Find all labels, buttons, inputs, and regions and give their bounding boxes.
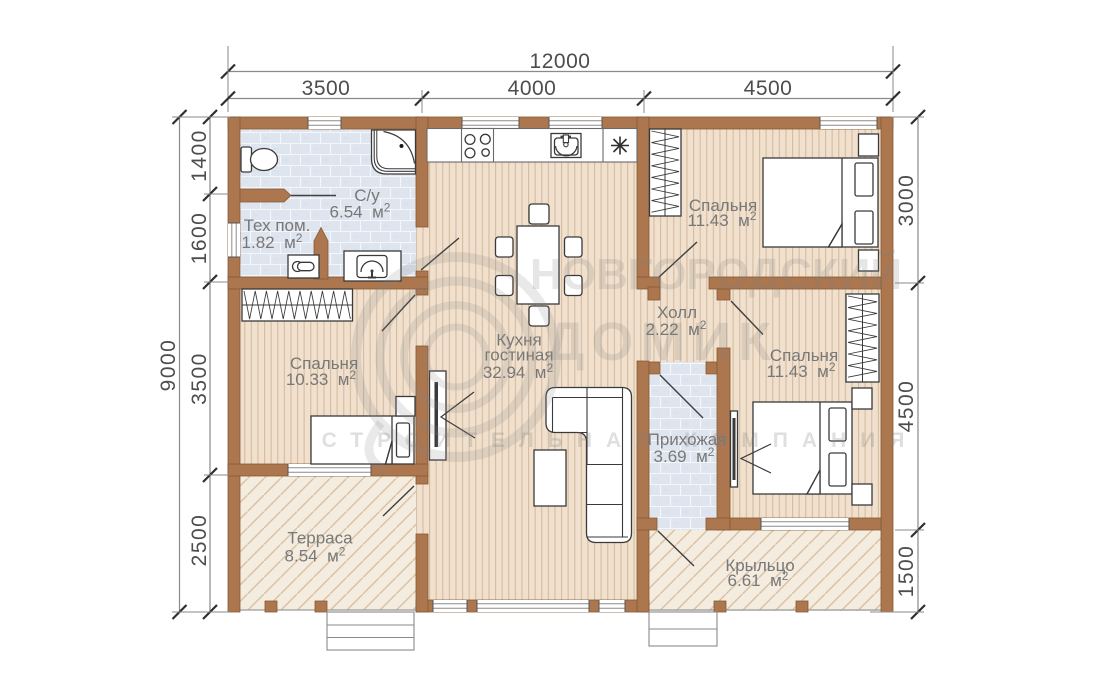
svg-text:гостиная: гостиная xyxy=(484,346,553,365)
svg-text:2500: 2500 xyxy=(188,514,211,567)
svg-text:3000: 3000 xyxy=(895,174,918,227)
svg-text:1500: 1500 xyxy=(895,545,918,598)
svg-text:12000: 12000 xyxy=(530,50,591,73)
svg-text:6.61 м2: 6.61 м2 xyxy=(728,569,789,590)
svg-text:4500: 4500 xyxy=(744,77,793,100)
svg-text:1.82 м2: 1.82 м2 xyxy=(242,231,303,252)
svg-text:1600: 1600 xyxy=(188,212,211,265)
svg-text:1400: 1400 xyxy=(188,129,211,182)
svg-text:8.54 м2: 8.54 м2 xyxy=(285,545,346,566)
svg-text:ДОМИК: ДОМИК xyxy=(546,312,778,372)
svg-text:3500: 3500 xyxy=(188,352,211,405)
svg-text:4500: 4500 xyxy=(895,380,918,433)
svg-text:6.54 м2: 6.54 м2 xyxy=(330,201,391,222)
svg-text:НОВГОРОДСКИЙ: НОВГОРОДСКИЙ xyxy=(530,248,902,299)
svg-text:32.94 м2: 32.94 м2 xyxy=(483,361,554,382)
svg-text:3500: 3500 xyxy=(302,77,351,100)
svg-text:9000: 9000 xyxy=(157,339,180,392)
svg-text:4000: 4000 xyxy=(508,77,557,100)
svg-text:СТРОИТЕЛЬНАЯ КОМПАНИЯ: СТРОИТЕЛЬНАЯ КОМПАНИЯ xyxy=(322,429,919,452)
svg-text:10.33 м2: 10.33 м2 xyxy=(286,368,357,389)
svg-text:11.43 м2: 11.43 м2 xyxy=(687,209,756,230)
